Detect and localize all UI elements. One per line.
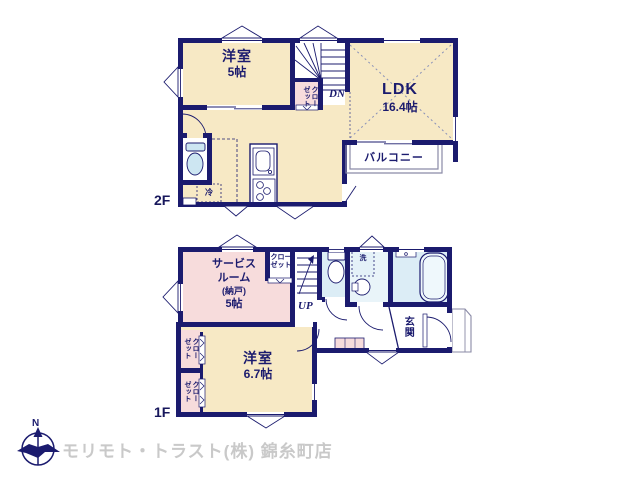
closet-1f-top-line2: ゼット (271, 262, 292, 270)
closet-1f-top-label: クロー ゼット (271, 254, 292, 270)
room-ldk-name: LDK (382, 80, 418, 100)
room-2f-yoshitsu-label: 洋室 5帖 (222, 48, 252, 80)
washer-label: 洗 (360, 255, 367, 263)
service-room-line3: (納戸) (212, 286, 256, 298)
compass-icon (17, 427, 60, 465)
room-1f-yoshitsu-name: 洋室 (243, 350, 273, 367)
floor1-plan (163, 235, 471, 428)
closet-1f-top-line1: クロー (271, 254, 292, 262)
floor2-tag: 2F (154, 192, 170, 209)
room-ldk-size: 16.4帖 (382, 100, 418, 115)
compass-north-label: N (32, 418, 39, 430)
balcony-label: バルコニー (364, 152, 424, 165)
entrance-porch (452, 309, 471, 352)
room-2f-yoshitsu-size: 5帖 (222, 65, 252, 80)
service-room-line4: 5帖 (212, 297, 256, 311)
floorplan-page: 洋室 5帖 LDK 16.4帖 バルコニー クローゼット DN 冷 2F サービ… (0, 0, 640, 480)
floor1-tag: 1F (154, 404, 170, 421)
fridge-label: 冷 (205, 188, 213, 198)
kitchen-counter (250, 144, 277, 205)
room-2f-yoshitsu-name: 洋室 (222, 48, 252, 65)
service-room-line2: ルーム (212, 271, 256, 285)
entrance-label: 玄関 (401, 312, 413, 342)
toilet-2f (183, 138, 209, 182)
room-1f-yoshitsu-label: 洋室 6.7帖 (243, 350, 273, 382)
room-ldk-label: LDK 16.4帖 (382, 80, 418, 114)
service-room-line1: サービス (212, 257, 256, 271)
closet-1f-left2-label: クローゼット (181, 378, 199, 404)
toilet-1f (328, 252, 345, 283)
closet-2f-label: クローゼット (298, 84, 318, 108)
stairs-1f (297, 258, 317, 294)
stairs-down-label: DN (329, 88, 345, 101)
closet-1f-left1-label: クローゼット (181, 335, 199, 361)
company-watermark: モリモト・トラスト(株) 錦糸町店 (62, 442, 333, 463)
service-room-label: サービス ルーム (納戸) 5帖 (212, 257, 256, 312)
room-1f-yoshitsu-size: 6.7帖 (243, 367, 273, 382)
stairs-up-label: UP (298, 300, 313, 313)
floorplan-drawing (0, 0, 640, 480)
